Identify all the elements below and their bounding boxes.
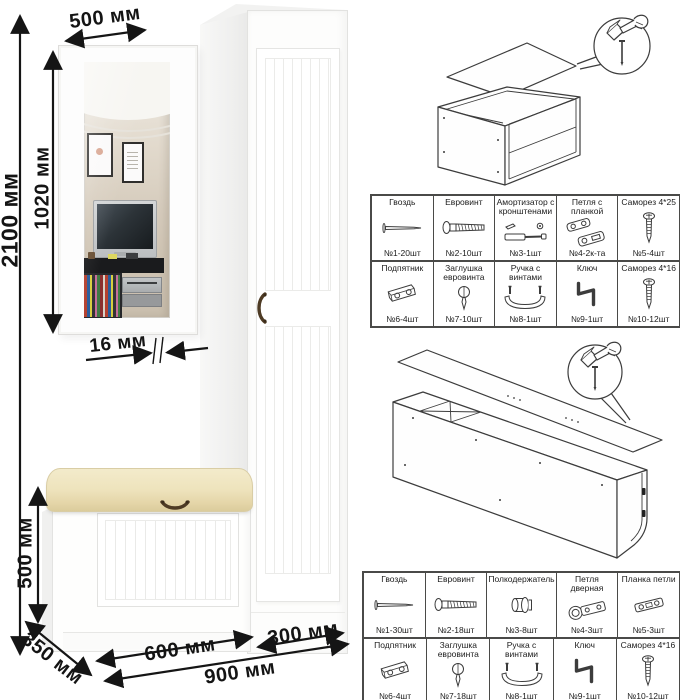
part-quantity: №9-1шт	[571, 314, 603, 324]
part-name: Ключ	[577, 264, 598, 273]
part-name: Евровинт	[445, 198, 483, 207]
assembly-step-bench-illustration	[390, 0, 680, 192]
hardware-cell: Саморез 4*16№10-12шт	[617, 262, 679, 326]
part-quantity: №7-10шт	[445, 314, 482, 324]
hardware-cell: Евровинт№2-18шт	[425, 573, 487, 637]
hardware-cell: Амортизатор с кронштенами№3-1шт	[494, 196, 556, 260]
dim-label-bench-height: 500 мм	[15, 517, 38, 589]
hardware-row: Гвоздь№1-30штЕвровинт№2-18штПолкодержате…	[364, 573, 679, 637]
hardware-cell: Саморез 4*16№10-12шт	[616, 639, 679, 700]
part-name: Заглушка евровинта	[428, 641, 488, 660]
dim-label-mirror-width: 500 мм	[68, 2, 142, 34]
part-name: Гвоздь	[381, 575, 407, 584]
hardware-table-mirror-bench: Гвоздь№1-20штЕвровинт№2-10штАмортизатор …	[370, 194, 680, 328]
bench-body	[52, 500, 251, 652]
part-quantity: №2-18шт	[438, 625, 475, 635]
part-name: Ключ	[574, 641, 595, 650]
hardware-row: Гвоздь№1-20штЕвровинт№2-10штАмортизатор …	[372, 196, 679, 260]
part-quantity: №4-2к-та	[569, 248, 605, 258]
part-name: Гвоздь	[389, 198, 415, 207]
part-name: Петля с планкой	[558, 198, 617, 217]
part-name: Петля дверная	[558, 575, 617, 594]
part-name: Саморез 4*25	[621, 198, 676, 207]
confirmat-screw-icon	[442, 207, 486, 248]
gas-strut-icon	[502, 217, 548, 248]
nail-icon	[373, 584, 415, 625]
part-name: Подпятник	[374, 641, 416, 650]
part-quantity: №1-30шт	[376, 625, 413, 635]
bench-flap-handle	[160, 499, 190, 512]
hardware-cell: Ключ№9-1шт	[553, 639, 616, 700]
hardware-cell: Саморез 4*25№5-4шт	[617, 196, 679, 260]
wardrobe-door	[256, 48, 340, 602]
assembly-step-wardrobe-illustration	[380, 330, 680, 568]
hardware-row: Подпятник№6-4штЗаглушка евровинта№7-10шт…	[372, 260, 679, 326]
hardware-cell: Петля дверная№4-3шт	[556, 573, 618, 637]
hardware-cell: Ручка с винтами№8-1шт	[494, 262, 556, 326]
hardware-cell: Петля с планкой№4-2к-та	[556, 196, 618, 260]
hammer-inset	[568, 342, 622, 399]
confirmat-screw-icon	[434, 584, 478, 625]
dim-label-mirror-height: 1020 мм	[32, 146, 55, 229]
part-quantity: №5-4шт	[633, 248, 665, 258]
hardware-cell: Гвоздь№1-20шт	[372, 196, 433, 260]
part-name: Саморез 4*16	[621, 641, 676, 650]
hardware-cell: Заглушка евровинта№7-10шт	[433, 262, 495, 326]
dim-label-mirror-thickness: 16 мм	[88, 330, 147, 358]
mirror-glass-reflection	[84, 62, 170, 318]
footpad-icon	[377, 650, 413, 691]
part-quantity: №8-1шт	[509, 314, 541, 324]
hardware-cell: Ручка с винтами№8-1шт	[489, 639, 552, 700]
part-quantity: №3-8шт	[505, 625, 537, 635]
part-quantity: №1-20шт	[384, 248, 421, 258]
part-quantity: №6-4шт	[379, 691, 411, 700]
part-quantity: №3-1шт	[509, 248, 541, 258]
part-quantity: №2-10шт	[445, 248, 482, 258]
wardrobe-plinth-seam	[248, 612, 345, 613]
part-quantity: №10-12шт	[627, 691, 669, 700]
hardware-row: Подпятник№6-4штЗаглушка евровинта№7-18шт…	[364, 637, 679, 700]
hardware-cell: Заглушка евровинта№7-18шт	[426, 639, 489, 700]
glass-sheen	[84, 62, 170, 318]
handle-icon	[503, 283, 547, 314]
part-quantity: №4-3шт	[571, 625, 603, 635]
assembly-instruction-sheet: 2100 мм 500 мм 1020 мм 16 мм 500 мм 350 …	[0, 0, 680, 700]
part-name: Планка петли	[622, 575, 676, 584]
door-hinge-icon	[565, 594, 609, 625]
hardware-cell: Евровинт№2-10шт	[433, 196, 495, 260]
bench-flap-door	[97, 513, 239, 607]
hardware-table-wardrobe: Гвоздь№1-30штЕвровинт№2-18штПолкодержате…	[362, 571, 680, 700]
hinge-with-plate-icon	[564, 217, 610, 248]
cap-icon	[456, 283, 472, 314]
part-name: Евровинт	[437, 575, 475, 584]
cap-icon	[450, 660, 466, 691]
wardrobe-door-lower-panel	[265, 326, 331, 574]
wardrobe-door-upper-panel	[265, 58, 331, 291]
key-icon	[572, 273, 602, 314]
part-quantity: №7-18шт	[440, 691, 477, 700]
part-name: Подпятник	[381, 264, 423, 273]
bench-flap-panel	[105, 520, 231, 600]
hardware-cell: Подпятник№6-4шт	[372, 262, 433, 326]
hardware-cell: Гвоздь№1-30шт	[364, 573, 425, 637]
dim-label-total-height: 2100 мм	[0, 172, 24, 267]
part-name: Ручка с винтами	[496, 264, 555, 283]
wardrobe-door-handle	[255, 292, 267, 324]
handle-icon	[500, 660, 544, 691]
part-name: Полкодержатель	[488, 575, 554, 584]
part-name: Заглушка евровинта	[435, 264, 494, 283]
mirror	[58, 45, 198, 335]
footpad-icon	[384, 273, 420, 314]
shelf-pin-icon	[508, 584, 536, 625]
bench-cushion	[46, 468, 253, 512]
part-quantity: №5-3шт	[633, 625, 665, 635]
key-icon	[570, 650, 600, 691]
hardware-cell: Полкодержатель№3-8шт	[486, 573, 555, 637]
hardware-cell: Планка петли№5-3шт	[617, 573, 679, 637]
screw-icon	[642, 273, 656, 314]
hammer-inset	[594, 15, 650, 74]
part-quantity: №10-12шт	[628, 314, 670, 324]
part-name: Саморез 4*16	[621, 264, 676, 273]
screw-icon	[642, 207, 656, 248]
part-name: Ручка с винтами	[491, 641, 551, 660]
hinge-plate-icon	[630, 584, 668, 625]
nail-icon	[381, 207, 423, 248]
screw-icon	[641, 650, 655, 691]
part-quantity: №9-1шт	[569, 691, 601, 700]
part-quantity: №6-4шт	[386, 314, 418, 324]
hardware-cell: Ключ№9-1шт	[556, 262, 618, 326]
part-quantity: №8-1шт	[505, 691, 537, 700]
part-name: Амортизатор с кронштенами	[496, 198, 555, 217]
hardware-cell: Подпятник№6-4шт	[364, 639, 426, 700]
dim-label-total-width: 900 мм	[203, 656, 277, 689]
